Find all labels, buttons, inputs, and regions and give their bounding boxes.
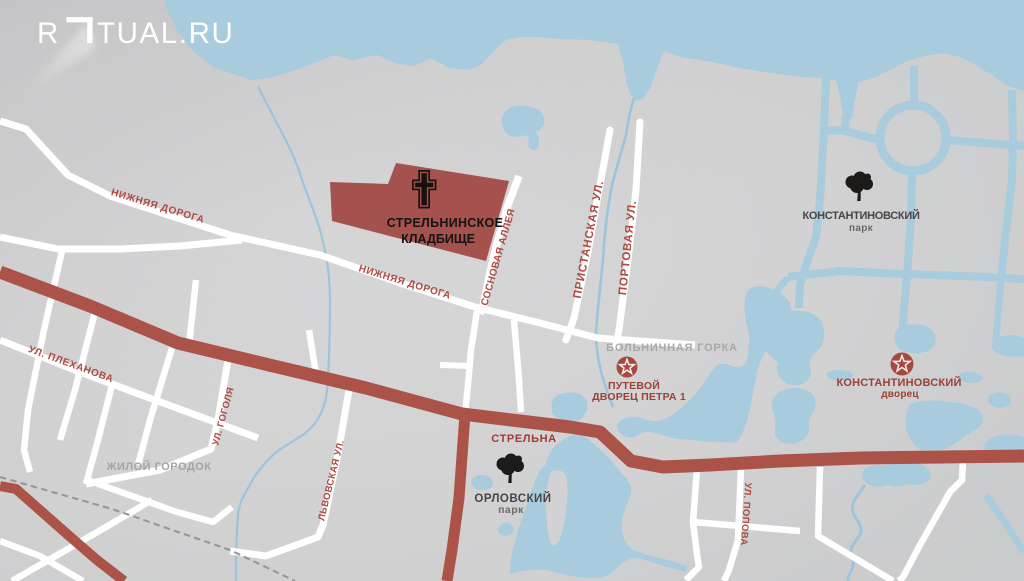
svg-text:R: R bbox=[37, 17, 58, 50]
svg-text:СТРЕЛЬНИНСКОЕ: СТРЕЛЬНИНСКОЕ bbox=[387, 216, 503, 230]
svg-text:TUAL.RU: TUAL.RU bbox=[97, 17, 234, 50]
svg-text:парк: парк bbox=[498, 504, 524, 516]
svg-text:парк: парк bbox=[849, 223, 874, 234]
svg-text:ЖИЛОЙ ГОРОДОК: ЖИЛОЙ ГОРОДОК bbox=[106, 460, 212, 473]
svg-text:КОНСТАНТИНОВСКИЙ: КОНСТАНТИНОВСКИЙ bbox=[836, 376, 961, 389]
svg-text:БОЛЬНИЧНАЯ ГОРКА: БОЛЬНИЧНАЯ ГОРКА bbox=[606, 342, 738, 354]
svg-text:СТРЕЛЬНА: СТРЕЛЬНА bbox=[491, 433, 556, 445]
svg-text:ДВОРЕЦ ПЕТРА 1: ДВОРЕЦ ПЕТРА 1 bbox=[592, 391, 686, 403]
svg-text:КЛАДБИЩЕ: КЛАДБИЩЕ bbox=[401, 232, 475, 246]
svg-text:КОНСТАНТИНОВСКИЙ: КОНСТАНТИНОВСКИЙ bbox=[802, 209, 920, 222]
svg-text:дворец: дворец bbox=[881, 389, 919, 400]
